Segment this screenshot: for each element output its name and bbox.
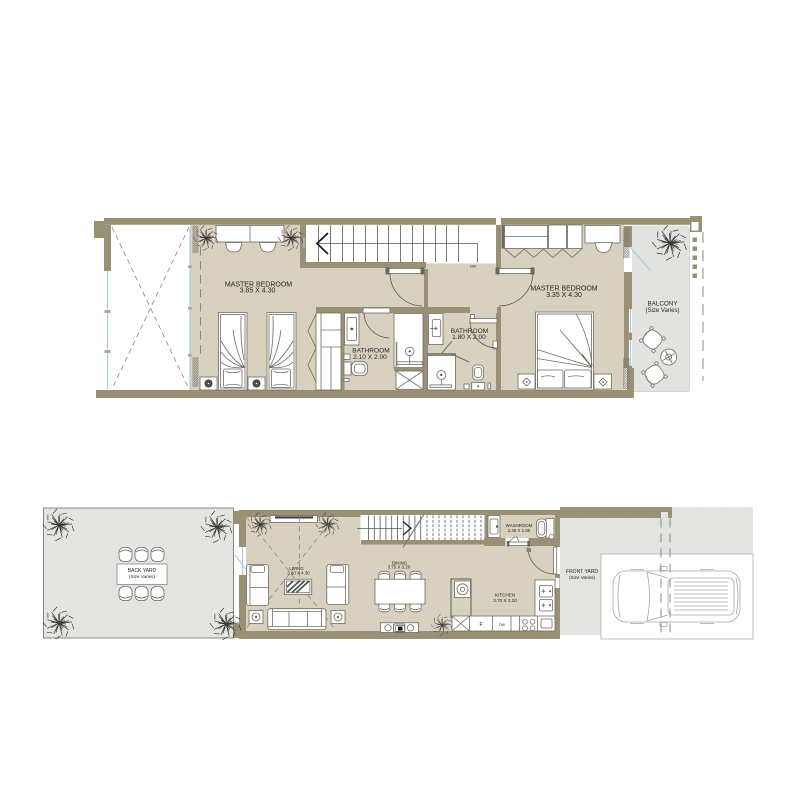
svg-text:3.35 X 4.30: 3.35 X 4.30 (546, 292, 582, 299)
svg-text:3.85 X 4.30: 3.85 X 4.30 (240, 288, 276, 295)
svg-text:(Size Varies): (Size Varies) (569, 575, 595, 580)
svg-text:3.60 X 4.30: 3.60 X 4.30 (287, 571, 310, 576)
svg-text:DW: DW (499, 623, 506, 627)
svg-text:KITCHEN: KITCHEN (495, 593, 515, 598)
svg-text:(Size Varies): (Size Varies) (129, 574, 155, 579)
svg-text:F: F (479, 622, 482, 628)
svg-text:2.10 X 2.00: 2.10 X 2.00 (353, 354, 387, 361)
svg-text:2.45 X 1.60: 2.45 X 1.60 (508, 528, 531, 533)
svg-text:3.70 X 3.20: 3.70 X 3.20 (493, 598, 517, 603)
svg-text:(Size Varies): (Size Varies) (646, 308, 680, 314)
svg-text:DN: DN (470, 264, 476, 269)
svg-text:1.80 X 2.00: 1.80 X 2.00 (452, 334, 486, 341)
svg-text:3.75 X 3.20: 3.75 X 3.20 (388, 565, 411, 570)
svg-text:BALCONY: BALCONY (647, 300, 678, 307)
